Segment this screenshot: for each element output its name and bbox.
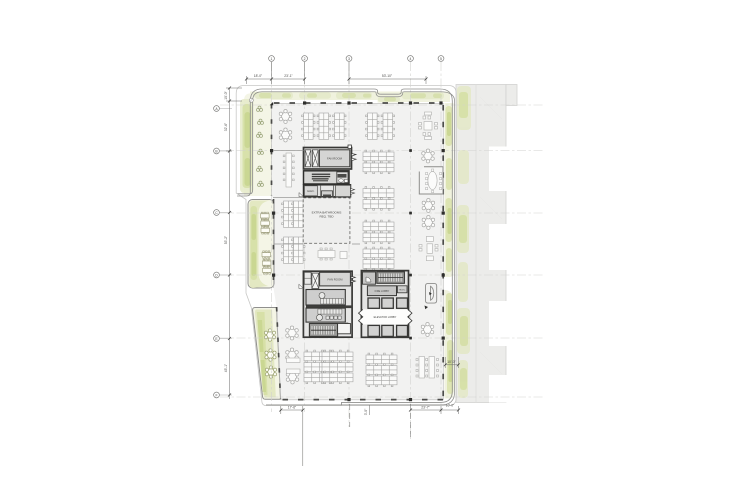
svg-text:2: 2 — [304, 57, 306, 61]
svg-text:FAN ROOM: FAN ROOM — [328, 278, 344, 282]
svg-text:53'-10": 53'-10" — [382, 74, 393, 78]
svg-text:F: F — [215, 393, 217, 397]
svg-text:32'-6": 32'-6" — [224, 122, 228, 131]
svg-text:3'-0": 3'-0" — [364, 408, 368, 415]
svg-text:10'-0": 10'-0" — [447, 360, 456, 364]
svg-text:3: 3 — [348, 57, 350, 61]
svg-text:23'-1": 23'-1" — [284, 74, 293, 78]
svg-text:45'-1": 45'-1" — [224, 363, 228, 372]
svg-text:5: 5 — [440, 57, 442, 61]
svg-text:23'-7": 23'-7" — [421, 406, 430, 410]
svg-text:ELEVATOR LOBBY: ELEVATOR LOBBY — [374, 315, 397, 319]
svg-text:17'-6": 17'-6" — [288, 406, 297, 410]
svg-text:REQ. TBD: REQ. TBD — [319, 215, 334, 219]
svg-text:1: 1 — [271, 57, 273, 61]
svg-text:FAN ROOM: FAN ROOM — [327, 157, 343, 161]
svg-text:10'-0": 10'-0" — [224, 90, 228, 99]
svg-text:ELEC.: ELEC. — [307, 190, 315, 193]
svg-text:10'-0": 10'-0" — [446, 404, 455, 408]
svg-text:53'-2": 53'-2" — [224, 235, 228, 244]
svg-text:18'-0": 18'-0" — [254, 74, 263, 78]
svg-text:TELEC.: TELEC. — [399, 289, 406, 291]
svg-text:FIRE LOBBY: FIRE LOBBY — [375, 290, 390, 293]
svg-text:4: 4 — [410, 57, 412, 61]
